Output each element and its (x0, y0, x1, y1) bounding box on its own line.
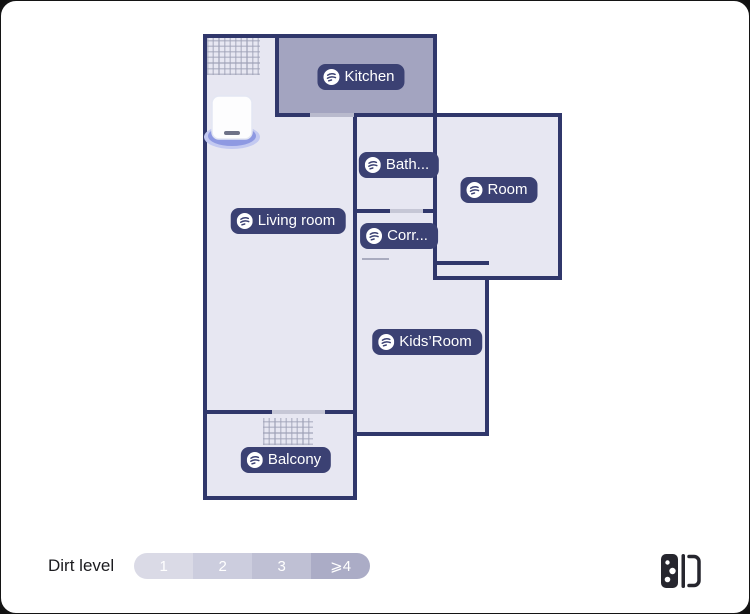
dirt-level-3: 3 (252, 553, 311, 579)
clean-swirl-icon (366, 228, 382, 244)
room-label-text: Room (487, 181, 527, 199)
dirt-level-2: 2 (193, 553, 252, 579)
carpet-living-room (207, 38, 260, 75)
room-label-living-room[interactable]: Living room (231, 208, 346, 234)
door-kitchen (310, 113, 354, 117)
room-label-kids-room[interactable]: Kids’Room (372, 329, 482, 355)
door-balcony (272, 410, 325, 414)
room-label-bathroom[interactable]: Bath... (359, 152, 439, 178)
wall-segment (433, 261, 489, 265)
dock-base-station-icon (203, 92, 261, 152)
clean-swirl-icon (247, 452, 263, 468)
clean-swirl-icon (237, 213, 253, 229)
room-label-room[interactable]: Room (460, 177, 537, 203)
room-label-kitchen[interactable]: Kitchen (317, 64, 404, 90)
room-label-text: Living room (258, 212, 336, 230)
door-bathroom (390, 209, 423, 213)
room-label-text: Kitchen (344, 68, 394, 86)
room-label-corridor[interactable]: Corr... (360, 223, 438, 249)
clean-swirl-icon (378, 334, 394, 350)
split-map-icon (656, 547, 704, 595)
clean-swirl-icon (323, 69, 339, 85)
dirt-level-legend: Dirt level 1 2 3 ⩾4 (48, 553, 370, 579)
room-label-text: Balcony (268, 451, 321, 469)
dirt-level-scale: 1 2 3 ⩾4 (134, 553, 370, 579)
door-corridor (362, 258, 389, 260)
dirt-level-4plus: ⩾4 (311, 553, 370, 579)
room-label-text: Bath... (386, 156, 429, 174)
dirt-level-1: 1 (134, 553, 193, 579)
map-switch-button[interactable] (656, 547, 704, 595)
dirt-level-title: Dirt level (48, 556, 114, 576)
room-label-balcony[interactable]: Balcony (241, 447, 331, 473)
floor-plan-map: Kitchen Bath... Room Living room (0, 0, 750, 614)
clean-swirl-icon (466, 182, 482, 198)
room-label-text: Kids’Room (399, 333, 472, 351)
clean-swirl-icon (365, 157, 381, 173)
app-window: Kitchen Bath... Room Living room (0, 0, 750, 614)
carpet-balcony (263, 418, 313, 445)
room-label-text: Corr... (387, 227, 428, 245)
